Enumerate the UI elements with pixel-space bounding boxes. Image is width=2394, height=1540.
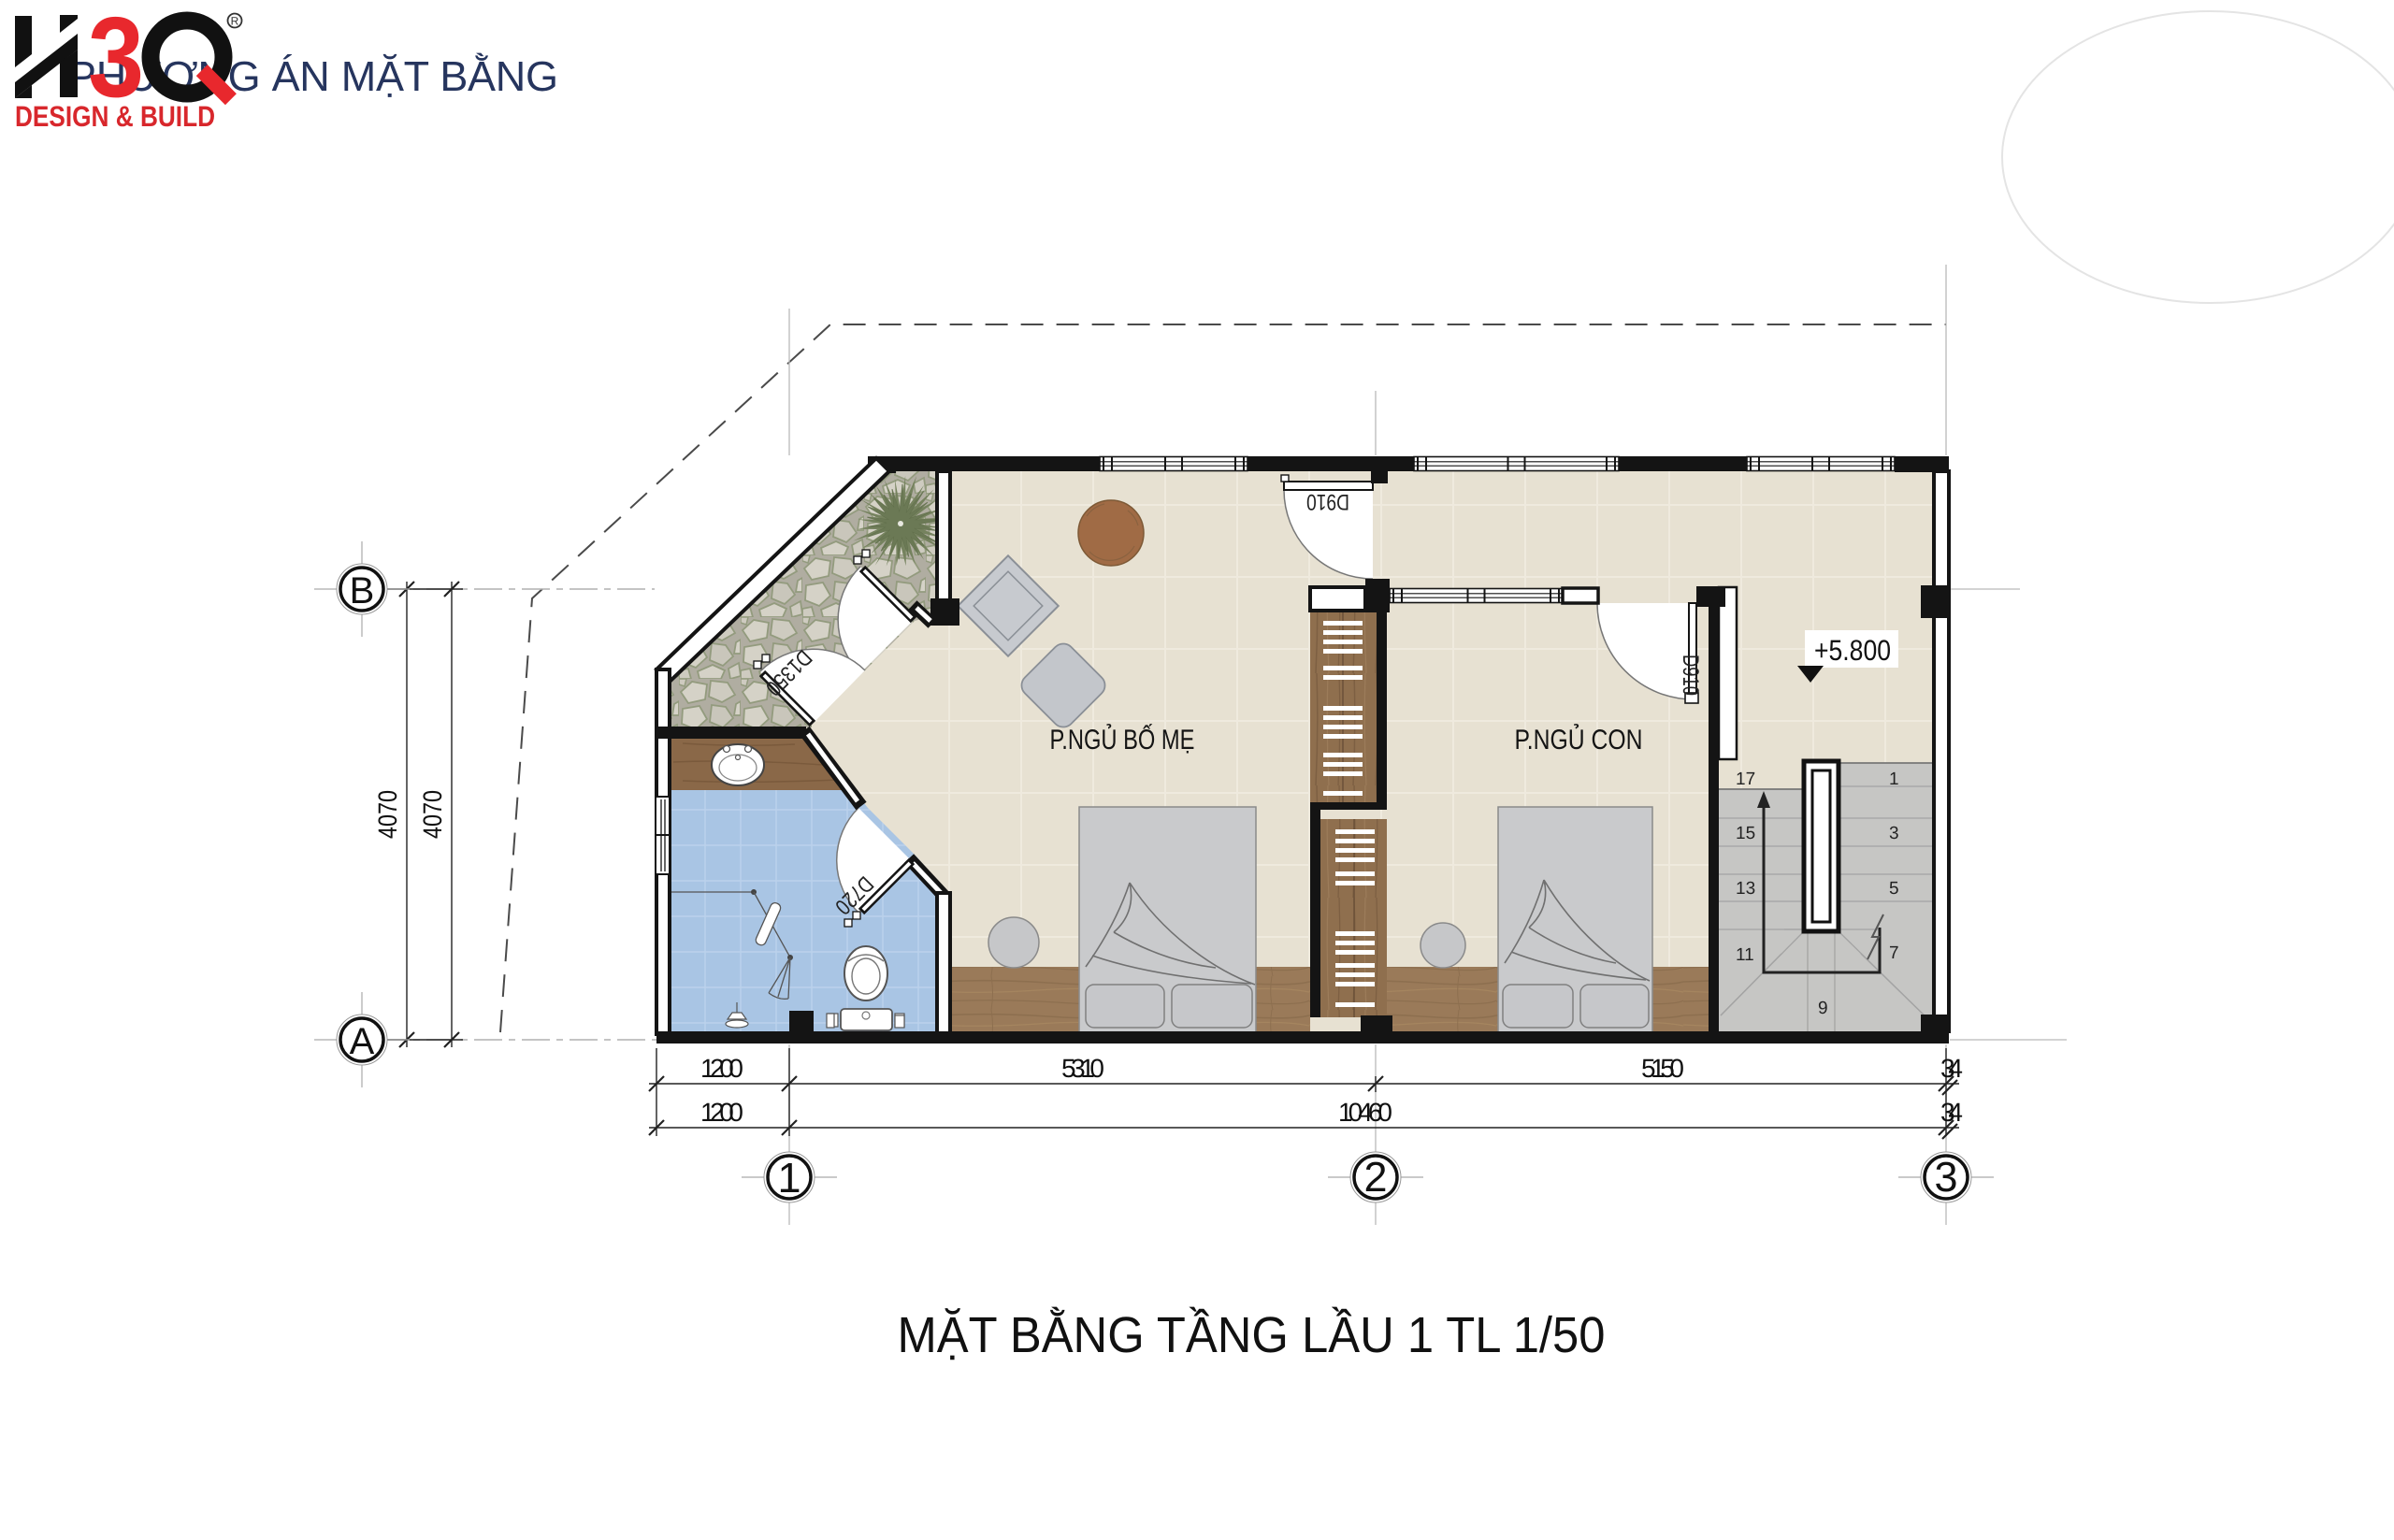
svg-text:34: 34 bbox=[1940, 1054, 1963, 1083]
svg-text:1200: 1200 bbox=[700, 1098, 743, 1127]
svg-text:1200: 1200 bbox=[700, 1054, 743, 1083]
svg-text:11: 11 bbox=[1736, 945, 1754, 965]
svg-text:3: 3 bbox=[1889, 824, 1899, 843]
svg-text:P.NGỦ CON: P.NGỦ CON bbox=[1515, 724, 1643, 756]
svg-text:1: 1 bbox=[1889, 770, 1899, 789]
svg-text:34: 34 bbox=[1940, 1098, 1963, 1127]
svg-text:4070: 4070 bbox=[418, 790, 447, 839]
svg-text:R: R bbox=[231, 15, 239, 28]
svg-text:13: 13 bbox=[1736, 879, 1755, 899]
svg-text:D910: D910 bbox=[1678, 655, 1703, 696]
svg-text:DESIGN & BUILD: DESIGN & BUILD bbox=[15, 100, 215, 133]
svg-text:1: 1 bbox=[777, 1154, 800, 1202]
svg-text:2: 2 bbox=[1363, 1153, 1387, 1201]
svg-text:5: 5 bbox=[1889, 879, 1899, 899]
svg-text:5150: 5150 bbox=[1641, 1054, 1684, 1083]
svg-text:15: 15 bbox=[1736, 824, 1755, 843]
svg-text:17: 17 bbox=[1736, 770, 1755, 789]
svg-text:MẶT BẰNG TẦNG LẦU 1 TL 1/50: MẶT BẰNG TẦNG LẦU 1 TL 1/50 bbox=[898, 1306, 1606, 1363]
svg-text:7: 7 bbox=[1889, 943, 1899, 963]
svg-text:10460: 10460 bbox=[1338, 1098, 1392, 1127]
svg-text:4070: 4070 bbox=[373, 790, 402, 839]
svg-text:D910: D910 bbox=[1306, 489, 1349, 514]
svg-text:+5.800: +5.800 bbox=[1814, 634, 1891, 667]
svg-text:5310: 5310 bbox=[1061, 1054, 1104, 1083]
svg-text:B: B bbox=[350, 570, 375, 612]
svg-text:9: 9 bbox=[1818, 999, 1828, 1018]
svg-text:A: A bbox=[350, 1021, 375, 1062]
svg-text:P.NGỦ BỐ MẸ: P.NGỦ BỐ MẸ bbox=[1050, 724, 1195, 756]
svg-text:3: 3 bbox=[1934, 1153, 1957, 1201]
